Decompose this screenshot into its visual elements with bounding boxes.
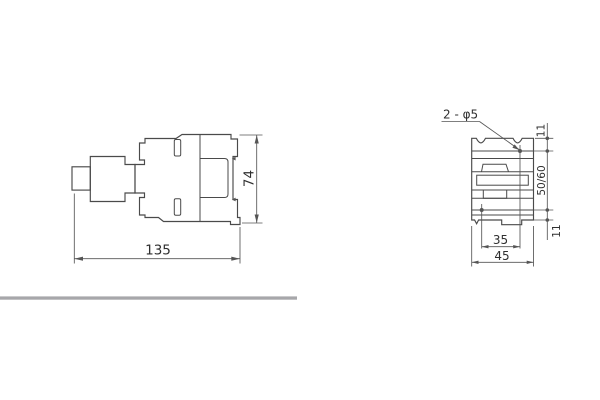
rail-clip-mark-top	[232, 157, 236, 161]
mounting-pitch-label: 50/60	[536, 165, 548, 195]
top-margin-label: 11	[536, 124, 548, 137]
front-view-hole-spacing-dimension: 35	[482, 233, 520, 248]
side-view-front-block	[90, 157, 135, 202]
side-view-button	[72, 167, 90, 190]
front-view-label-plate	[477, 175, 529, 185]
side-view-recess	[200, 159, 228, 198]
front-view-width-label: 45	[494, 249, 509, 263]
front-view-vertical-dimension-chain: 11 50/60 11	[534, 123, 564, 240]
side-view-bottom-latch	[174, 199, 180, 216]
side-view-height-dimension: 74	[240, 135, 263, 223]
hole-spacing-label: 35	[493, 233, 508, 247]
side-view-top-latch	[174, 140, 180, 157]
front-view: 2 - φ5 35 45	[442, 107, 564, 266]
drawing-canvas: 135 74	[0, 0, 600, 400]
side-view-height-label: 74	[242, 170, 258, 187]
front-view-small-plate	[483, 190, 506, 198]
side-view-width-label: 135	[145, 243, 171, 259]
divider-bar	[0, 296, 297, 299]
hole-callout-label: 2 - φ5	[443, 107, 478, 121]
mounting-hole-bottom	[480, 208, 484, 212]
hole-callout: 2 - φ5	[442, 107, 520, 150]
side-view: 135 74	[72, 135, 263, 264]
side-view-width-dimension: 135	[74, 194, 240, 264]
rail-clip-mark-bottom	[232, 198, 236, 202]
front-view-raised-tab	[482, 164, 509, 172]
side-view-body-outline	[135, 135, 240, 225]
technical-drawing: 135 74	[0, 0, 600, 400]
bottom-margin-label: 11	[551, 224, 563, 237]
